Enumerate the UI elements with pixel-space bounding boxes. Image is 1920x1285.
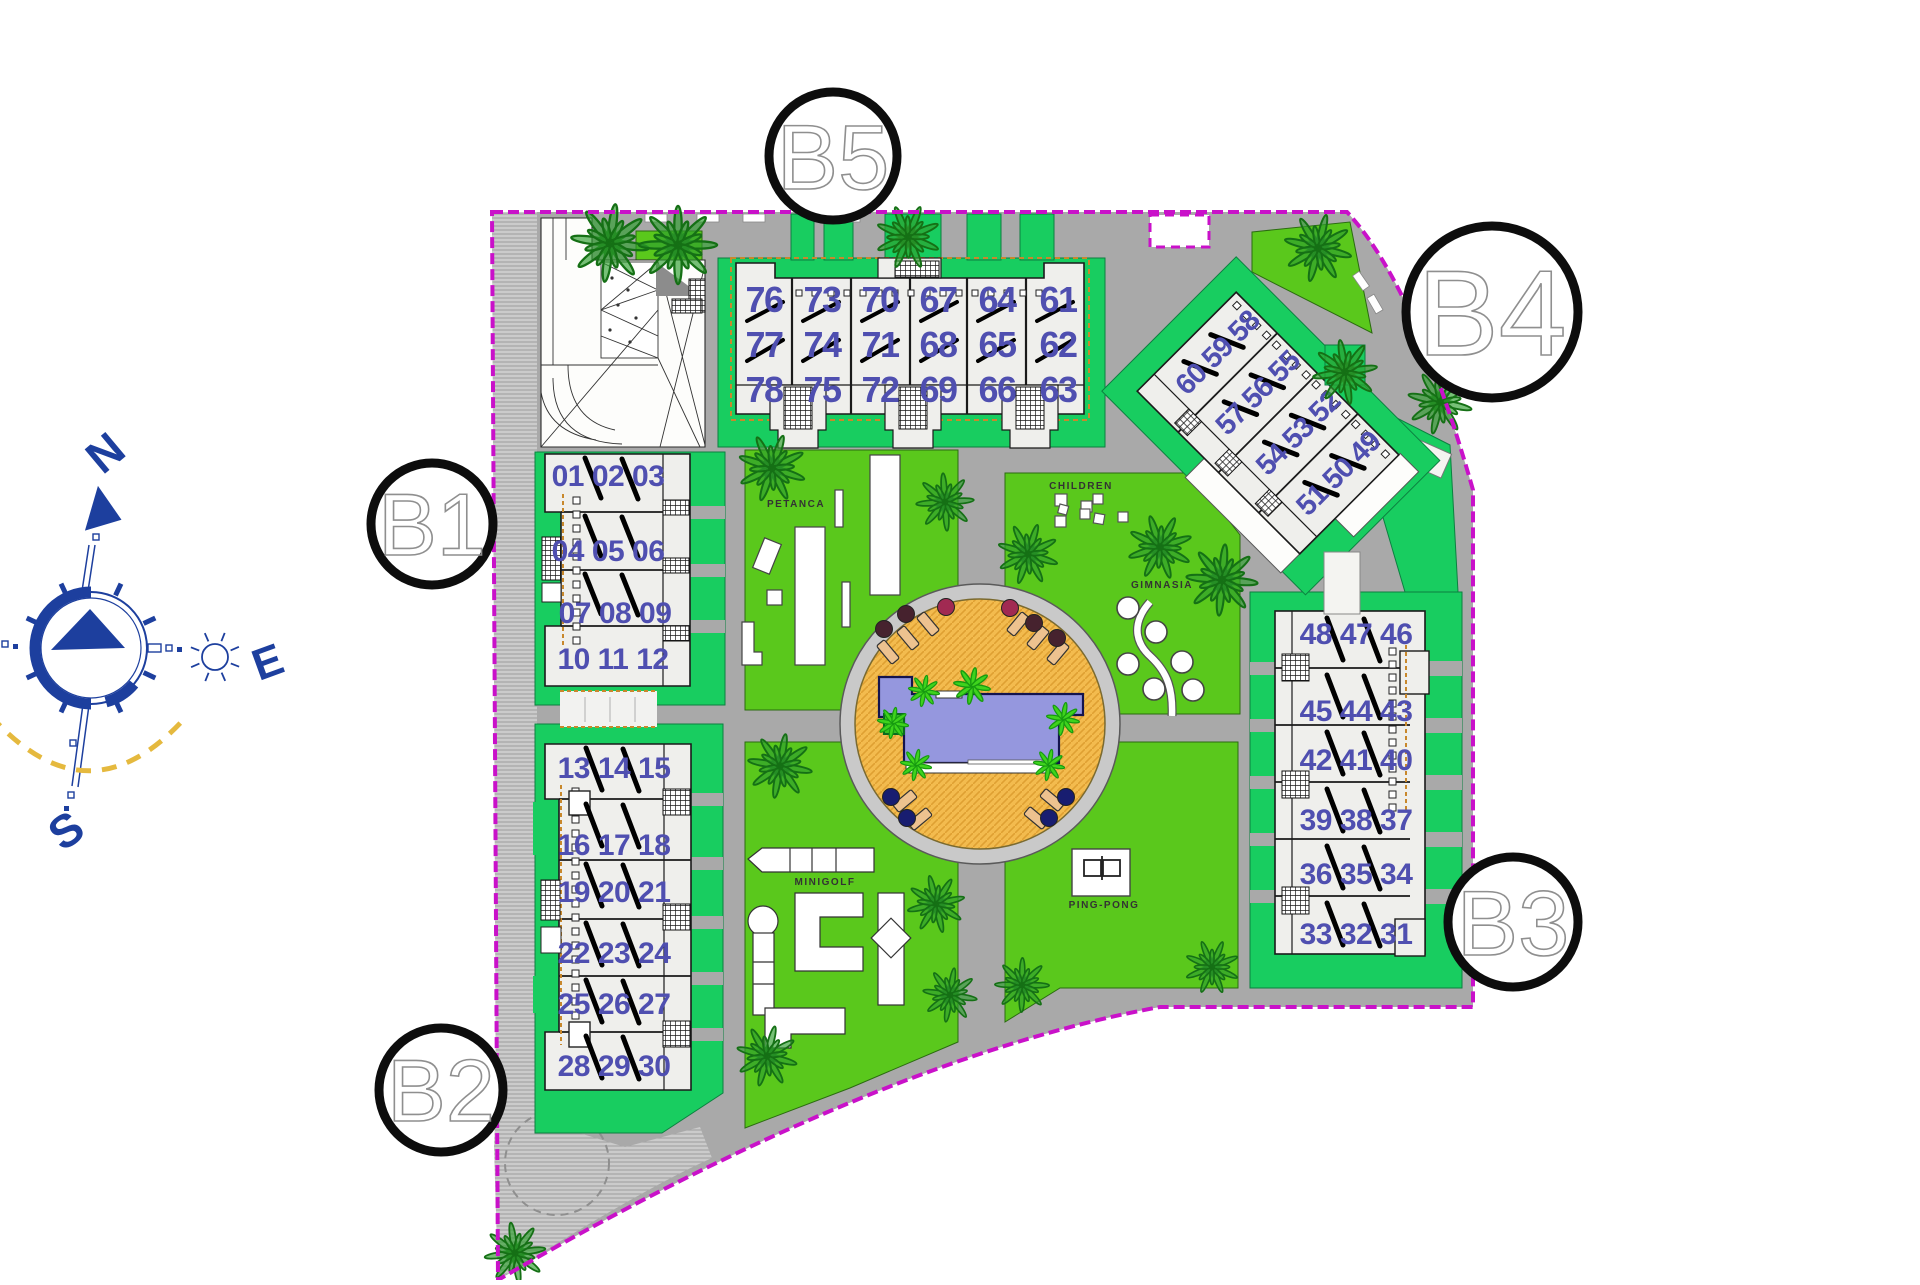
svg-text:72: 72 (861, 369, 899, 410)
svg-text:B4: B4 (1417, 245, 1566, 381)
svg-text:07 08 09: 07 08 09 (559, 597, 672, 630)
svg-text:66: 66 (978, 369, 1016, 410)
svg-text:01 02 03: 01 02 03 (552, 460, 665, 493)
svg-text:45 44 43: 45 44 43 (1300, 695, 1413, 728)
svg-text:68: 68 (919, 324, 957, 365)
svg-text:64: 64 (978, 279, 1017, 320)
svg-text:48 47 46: 48 47 46 (1300, 618, 1413, 651)
svg-text:73: 73 (803, 279, 841, 320)
svg-text:B1: B1 (378, 475, 486, 574)
svg-text:65: 65 (978, 324, 1017, 365)
svg-text:B5: B5 (777, 107, 890, 209)
svg-text:19 20 21: 19 20 21 (558, 876, 671, 909)
svg-text:76: 76 (745, 279, 783, 320)
svg-text:77: 77 (745, 324, 783, 365)
svg-text:13 14 15: 13 14 15 (558, 752, 671, 785)
svg-text:B2: B2 (387, 1041, 495, 1140)
svg-text:62: 62 (1039, 324, 1077, 365)
svg-text:69: 69 (919, 369, 957, 410)
svg-text:71: 71 (861, 324, 900, 365)
svg-text:22 23 24: 22 23 24 (558, 937, 672, 970)
svg-text:33 32 31: 33 32 31 (1300, 918, 1413, 951)
svg-text:67: 67 (919, 279, 957, 320)
svg-text:28 29 30: 28 29 30 (558, 1050, 671, 1083)
svg-text:PETANCA: PETANCA (767, 499, 825, 510)
svg-text:25 26 27: 25 26 27 (558, 988, 671, 1021)
svg-text:PING-PONG: PING-PONG (1069, 900, 1140, 911)
svg-text:61: 61 (1039, 279, 1078, 320)
svg-text:GIMNASIA: GIMNASIA (1131, 580, 1193, 591)
svg-text:MINIGOLF: MINIGOLF (795, 877, 856, 888)
svg-text:70: 70 (861, 279, 899, 320)
svg-text:10 11 12: 10 11 12 (557, 643, 668, 676)
svg-text:B3: B3 (1457, 873, 1570, 975)
svg-text:63: 63 (1039, 369, 1077, 410)
svg-text:42 41 40: 42 41 40 (1300, 744, 1413, 777)
svg-text:75: 75 (803, 369, 842, 410)
svg-text:78: 78 (745, 369, 783, 410)
svg-text:16 17 18: 16 17 18 (558, 829, 671, 862)
svg-text:36 35 34: 36 35 34 (1300, 858, 1414, 891)
svg-text:04 05 06: 04 05 06 (552, 535, 665, 568)
svg-text:39 38 37: 39 38 37 (1300, 804, 1413, 837)
svg-text:74: 74 (803, 324, 842, 365)
svg-text:CHILDREN: CHILDREN (1049, 481, 1113, 492)
